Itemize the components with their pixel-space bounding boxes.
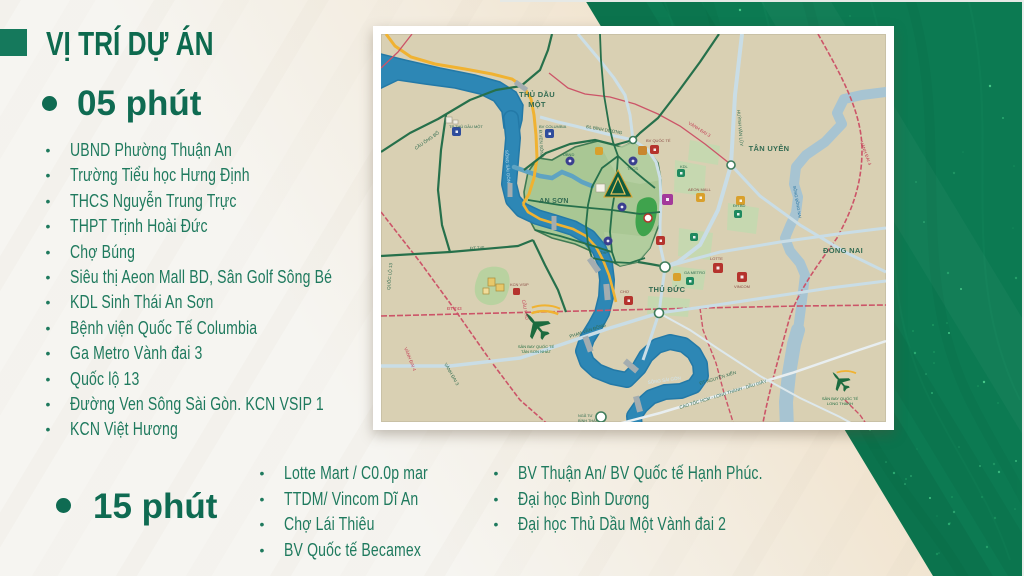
svg-text:ĐT 743: ĐT 743: [447, 306, 462, 311]
svg-text:MỘT: MỘT: [528, 100, 546, 109]
svg-text:THỦ DẦU: THỦ DẦU: [519, 89, 555, 99]
svg-text:ĐT 745: ĐT 745: [470, 245, 485, 251]
svg-text:TÂN SƠN NHẤT: TÂN SƠN NHẤT: [521, 349, 552, 354]
svg-text:TÂN UYÊN: TÂN UYÊN: [749, 144, 790, 153]
svg-text:AEON MALL: AEON MALL: [688, 187, 712, 192]
svg-text:UBND: UBND: [563, 152, 574, 157]
svg-text:LONG THÀNH: LONG THÀNH: [827, 401, 853, 406]
svg-text:ĐH BD: ĐH BD: [733, 203, 746, 208]
svg-text:THỦ ĐỨC: THỦ ĐỨC: [649, 285, 686, 294]
svg-text:ĐỒNG NAI: ĐỒNG NAI: [823, 245, 863, 255]
svg-text:AN SƠN: AN SƠN: [539, 198, 569, 205]
svg-text:BV QUỐC TẾ: BV QUỐC TẾ: [646, 138, 671, 143]
svg-text:BV COLUMBIA: BV COLUMBIA: [539, 124, 567, 129]
svg-text:NGÃ TƯ: NGÃ TƯ: [578, 413, 594, 418]
svg-text:THPT: THPT: [600, 250, 611, 255]
svg-text:VINCOM: VINCOM: [734, 284, 750, 289]
svg-text:GA METRO: GA METRO: [684, 270, 705, 275]
svg-text:BÌNH THÁI: BÌNH THÁI: [578, 419, 597, 423]
svg-text:CHỢ: CHỢ: [620, 289, 630, 294]
svg-text:THCS: THCS: [627, 166, 638, 171]
svg-text:LOTTE: LOTTE: [710, 256, 723, 261]
svg-text:TP THỦ DẦU MỘT: TP THỦ DẦU MỘT: [449, 124, 483, 129]
svg-text:KCN VSIP: KCN VSIP: [510, 282, 529, 287]
svg-text:KDL: KDL: [680, 164, 689, 169]
